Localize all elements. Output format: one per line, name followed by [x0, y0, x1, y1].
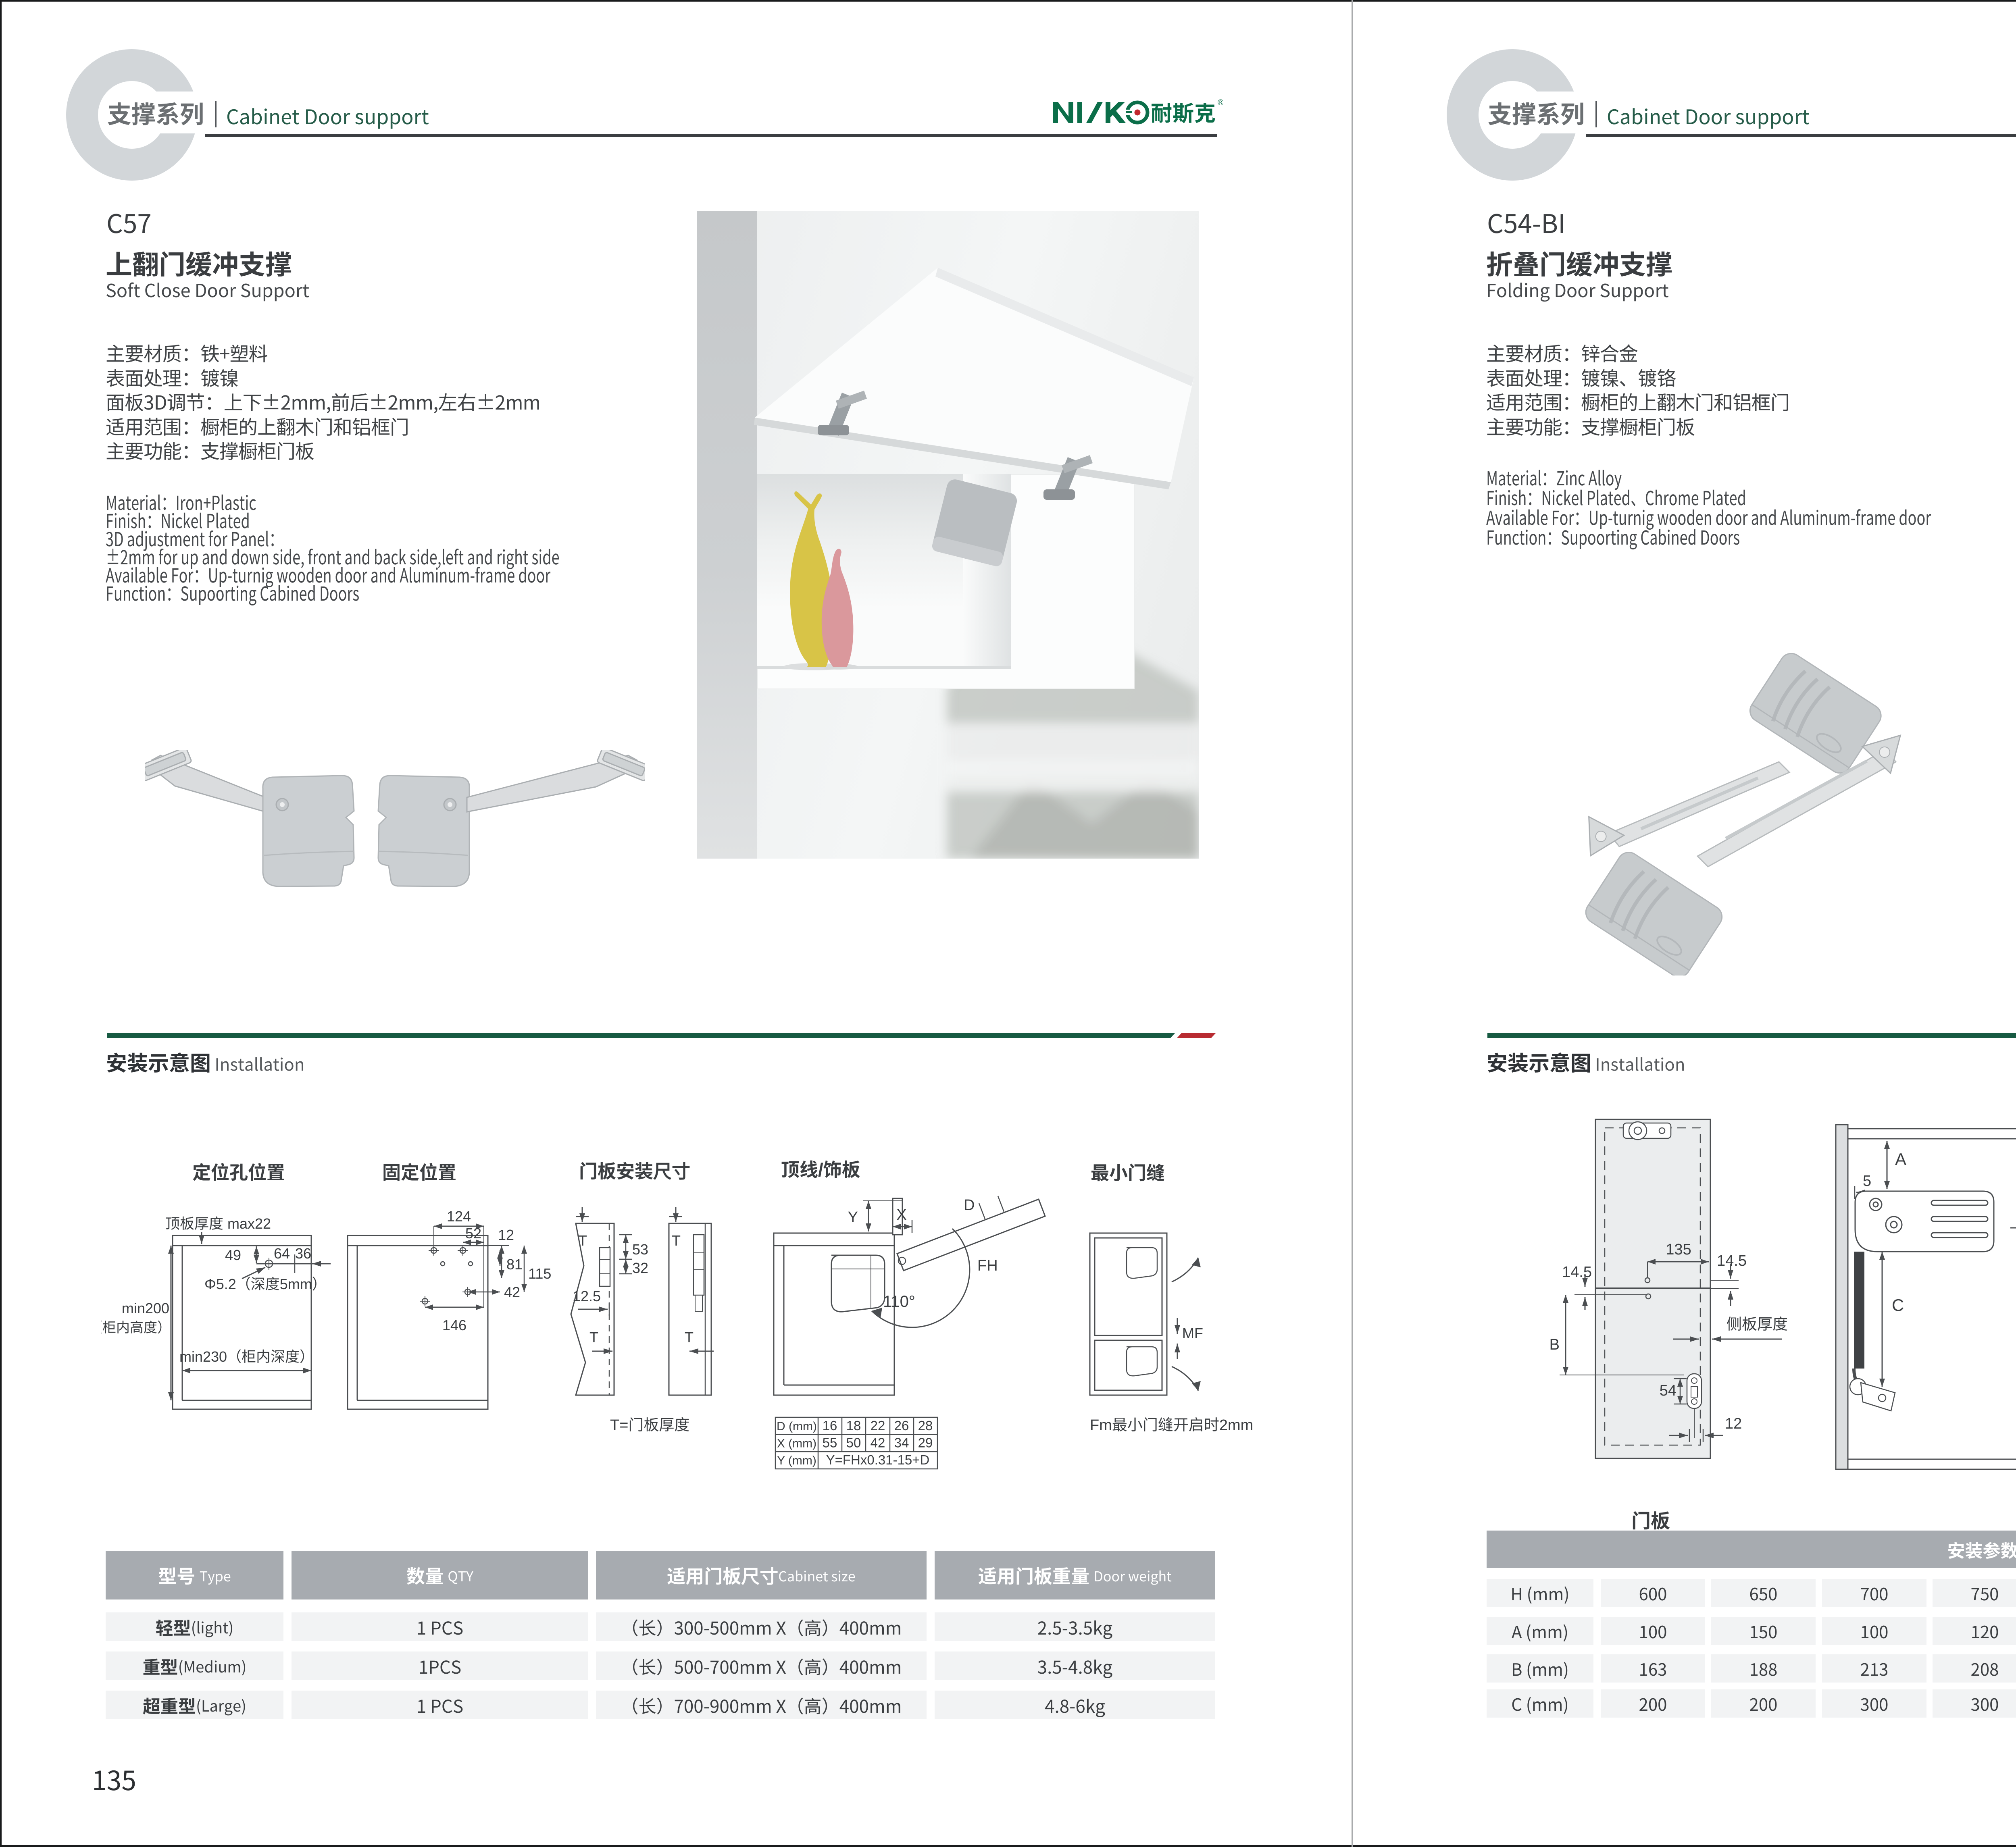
svg-text:min200: min200	[122, 1300, 169, 1317]
svg-text:29: 29	[918, 1435, 933, 1450]
svg-text:81: 81	[506, 1256, 523, 1273]
svg-text:MF: MF	[1182, 1325, 1203, 1342]
svg-text:最小门缝: 最小门缝	[1091, 1163, 1165, 1183]
svg-text:36: 36	[295, 1245, 311, 1262]
svg-text:Φ5.2（深度5mm）: Φ5.2（深度5mm）	[204, 1276, 327, 1292]
svg-text:42: 42	[871, 1435, 885, 1450]
svg-text:115: 115	[528, 1265, 551, 1282]
svg-text:定位孔位置: 定位孔位置	[192, 1162, 285, 1183]
svg-text:FH: FH	[977, 1257, 998, 1274]
svg-text:T=门板厚度: T=门板厚度	[610, 1417, 689, 1434]
svg-text:124: 124	[447, 1208, 471, 1225]
svg-text:Y=FHx0.31-15+D: Y=FHx0.31-15+D	[826, 1452, 930, 1467]
svg-text:T: T	[589, 1329, 598, 1346]
svg-text:Fm最小门缝开启时2mm: Fm最小门缝开启时2mm	[1090, 1417, 1253, 1434]
svg-text:顶线/饰板: 顶线/饰板	[781, 1159, 860, 1180]
svg-text:T: T	[578, 1232, 587, 1249]
svg-text:42: 42	[504, 1284, 520, 1300]
svg-text:49: 49	[225, 1247, 241, 1263]
svg-text:54: 54	[1660, 1382, 1677, 1399]
svg-text:64: 64	[274, 1245, 290, 1262]
svg-text:T: T	[672, 1232, 681, 1249]
svg-text:C: C	[1892, 1296, 1904, 1315]
svg-text:门板安装尺寸: 门板安装尺寸	[579, 1161, 690, 1182]
svg-text:50: 50	[846, 1435, 861, 1450]
svg-text:Y (mm): Y (mm)	[777, 1454, 816, 1467]
svg-text:D (mm): D (mm)	[777, 1420, 817, 1433]
svg-text:顶板厚度 max22: 顶板厚度 max22	[165, 1215, 271, 1232]
svg-text:146: 146	[442, 1317, 467, 1333]
svg-text:12: 12	[1725, 1415, 1742, 1432]
svg-text:22: 22	[871, 1418, 885, 1433]
svg-text:18: 18	[846, 1418, 861, 1433]
svg-text:34: 34	[894, 1435, 909, 1450]
svg-text:X: X	[896, 1206, 906, 1223]
svg-text:T: T	[685, 1329, 694, 1346]
svg-text:12.5: 12.5	[573, 1288, 601, 1304]
svg-text:Y: Y	[848, 1209, 858, 1226]
svg-text:53: 53	[632, 1241, 648, 1258]
svg-text:侧板厚度: 侧板厚度	[1727, 1316, 1788, 1333]
svg-text:D: D	[964, 1197, 975, 1214]
svg-text:14.5: 14.5	[1717, 1252, 1747, 1269]
svg-text:®: ®	[1218, 98, 1223, 107]
svg-text:28: 28	[918, 1418, 933, 1433]
svg-text:52: 52	[465, 1225, 481, 1242]
svg-text:135: 135	[1666, 1241, 1691, 1258]
svg-text:110°: 110°	[883, 1293, 915, 1310]
svg-text:A: A	[1895, 1150, 1906, 1169]
svg-text:耐斯克: 耐斯克	[1151, 98, 1216, 126]
svg-text:55: 55	[823, 1435, 837, 1450]
svg-text:min230（柜内深度）: min230（柜内深度）	[179, 1348, 314, 1365]
svg-text:16: 16	[823, 1418, 837, 1433]
svg-text:5: 5	[1863, 1173, 1871, 1190]
svg-text:12: 12	[498, 1227, 514, 1243]
svg-text:B: B	[1549, 1336, 1560, 1353]
svg-text:X (mm): X (mm)	[777, 1437, 816, 1450]
svg-text:（柜内高度）: （柜内高度）	[101, 1320, 171, 1335]
svg-text:32: 32	[632, 1260, 648, 1276]
svg-text:门板: 门板	[1631, 1511, 1670, 1532]
svg-text:固定位置: 固定位置	[382, 1162, 456, 1183]
svg-text:26: 26	[894, 1418, 909, 1433]
